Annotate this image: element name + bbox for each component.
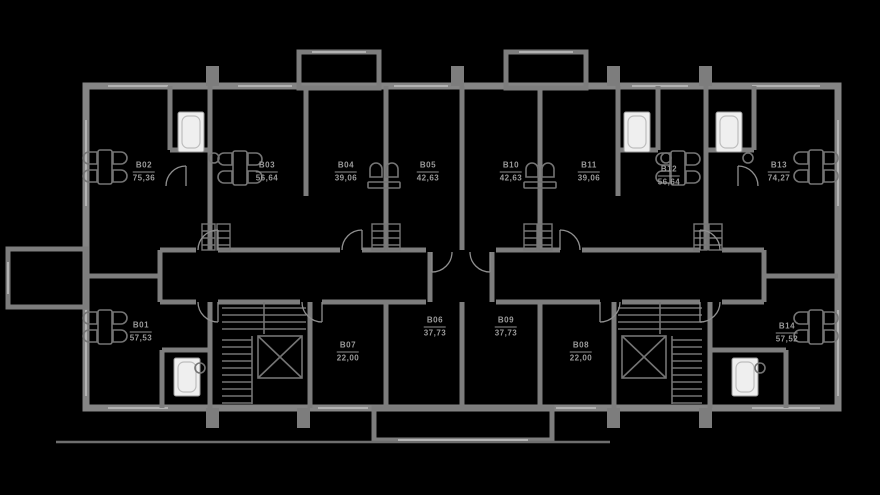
unit-id: B11 bbox=[578, 161, 600, 173]
door-arc-icon bbox=[738, 166, 758, 186]
unit-id: B01 bbox=[130, 321, 152, 333]
door-arc-icon bbox=[342, 230, 362, 250]
unit-id: B04 bbox=[335, 161, 357, 173]
bathtub-icon bbox=[716, 112, 742, 152]
door-arc-icon bbox=[166, 166, 186, 186]
unit-area: 37,73 bbox=[424, 329, 447, 339]
floor-plan-drawing bbox=[0, 0, 880, 495]
unit-area: 37,73 bbox=[495, 329, 518, 339]
unit-id: B06 bbox=[424, 316, 446, 328]
unit-area: 22,00 bbox=[337, 354, 360, 364]
bottom-terrace bbox=[56, 408, 610, 442]
unit-b03[interactable]: B03 56,64 bbox=[256, 161, 279, 184]
left-balcony bbox=[8, 249, 86, 307]
unit-b04[interactable]: B04 39,06 bbox=[335, 161, 358, 184]
stairs-left-icon bbox=[222, 302, 306, 404]
unit-id: B09 bbox=[495, 316, 517, 328]
riser-shaft-icon bbox=[217, 224, 230, 250]
windows bbox=[8, 52, 838, 440]
door-arc-icon bbox=[470, 252, 490, 272]
unit-b10[interactable]: B10 42,63 bbox=[500, 161, 523, 184]
unit-b12[interactable]: B12 56,64 bbox=[658, 165, 681, 188]
unit-b11[interactable]: B11 39,06 bbox=[578, 161, 601, 184]
riser-shaft-icon bbox=[372, 224, 385, 250]
unit-b06[interactable]: B06 37,73 bbox=[424, 316, 447, 339]
unit-id: B13 bbox=[768, 161, 790, 173]
door-arc-icon bbox=[560, 230, 580, 250]
unit-id: B05 bbox=[417, 161, 439, 173]
unit-area: 42,63 bbox=[500, 174, 523, 184]
unit-b08[interactable]: B08 22,00 bbox=[570, 341, 593, 364]
bathtub-icon bbox=[178, 112, 204, 152]
stairs-right-icon bbox=[618, 302, 702, 404]
unit-id: B02 bbox=[133, 161, 155, 173]
unit-b13[interactable]: B13 74,27 bbox=[768, 161, 791, 184]
unit-b05[interactable]: B05 42,63 bbox=[417, 161, 440, 184]
dining-set-icon bbox=[83, 310, 127, 344]
bathtub-icon bbox=[732, 358, 758, 396]
unit-area: 57,52 bbox=[776, 335, 799, 345]
unit-id: B12 bbox=[658, 165, 680, 177]
unit-id: B14 bbox=[776, 322, 798, 334]
floor-plan-stage: B02 75,36 B03 56,64 B04 39,06 B05 42,63 … bbox=[0, 0, 880, 495]
sink-icon bbox=[743, 153, 753, 163]
unit-area: 56,64 bbox=[256, 174, 279, 184]
unit-b07[interactable]: B07 22,00 bbox=[337, 341, 360, 364]
dining-set-icon bbox=[83, 150, 127, 184]
unit-area: 39,06 bbox=[578, 174, 601, 184]
unit-b01[interactable]: B01 57,53 bbox=[130, 321, 153, 344]
dining-set-icon bbox=[794, 150, 838, 184]
unit-area: 57,53 bbox=[130, 334, 153, 344]
unit-area: 22,00 bbox=[570, 354, 593, 364]
door-arc-icon bbox=[600, 302, 620, 322]
elevator-right-icon bbox=[622, 336, 666, 378]
unit-b02[interactable]: B02 75,36 bbox=[133, 161, 156, 184]
unit-area: 74,27 bbox=[768, 174, 791, 184]
unit-area: 75,36 bbox=[133, 174, 156, 184]
bathtub-icon bbox=[174, 358, 200, 396]
unit-b09[interactable]: B09 37,73 bbox=[495, 316, 518, 339]
riser-shaft-icon bbox=[524, 224, 537, 250]
unit-id: B08 bbox=[570, 341, 592, 353]
dining-set-icon bbox=[794, 310, 838, 344]
bathtub-icon bbox=[624, 112, 650, 152]
unit-id: B07 bbox=[337, 341, 359, 353]
unit-b14[interactable]: B14 57,52 bbox=[776, 322, 799, 345]
unit-area: 39,06 bbox=[335, 174, 358, 184]
unit-area: 56,64 bbox=[658, 178, 681, 188]
unit-id: B03 bbox=[256, 161, 278, 173]
unit-area: 42,63 bbox=[417, 174, 440, 184]
elevator-left-icon bbox=[258, 336, 302, 378]
riser-shaft-icon bbox=[387, 224, 400, 250]
door-arc-icon bbox=[700, 230, 720, 250]
unit-id: B10 bbox=[500, 161, 522, 173]
door-arc-icon bbox=[432, 252, 452, 272]
